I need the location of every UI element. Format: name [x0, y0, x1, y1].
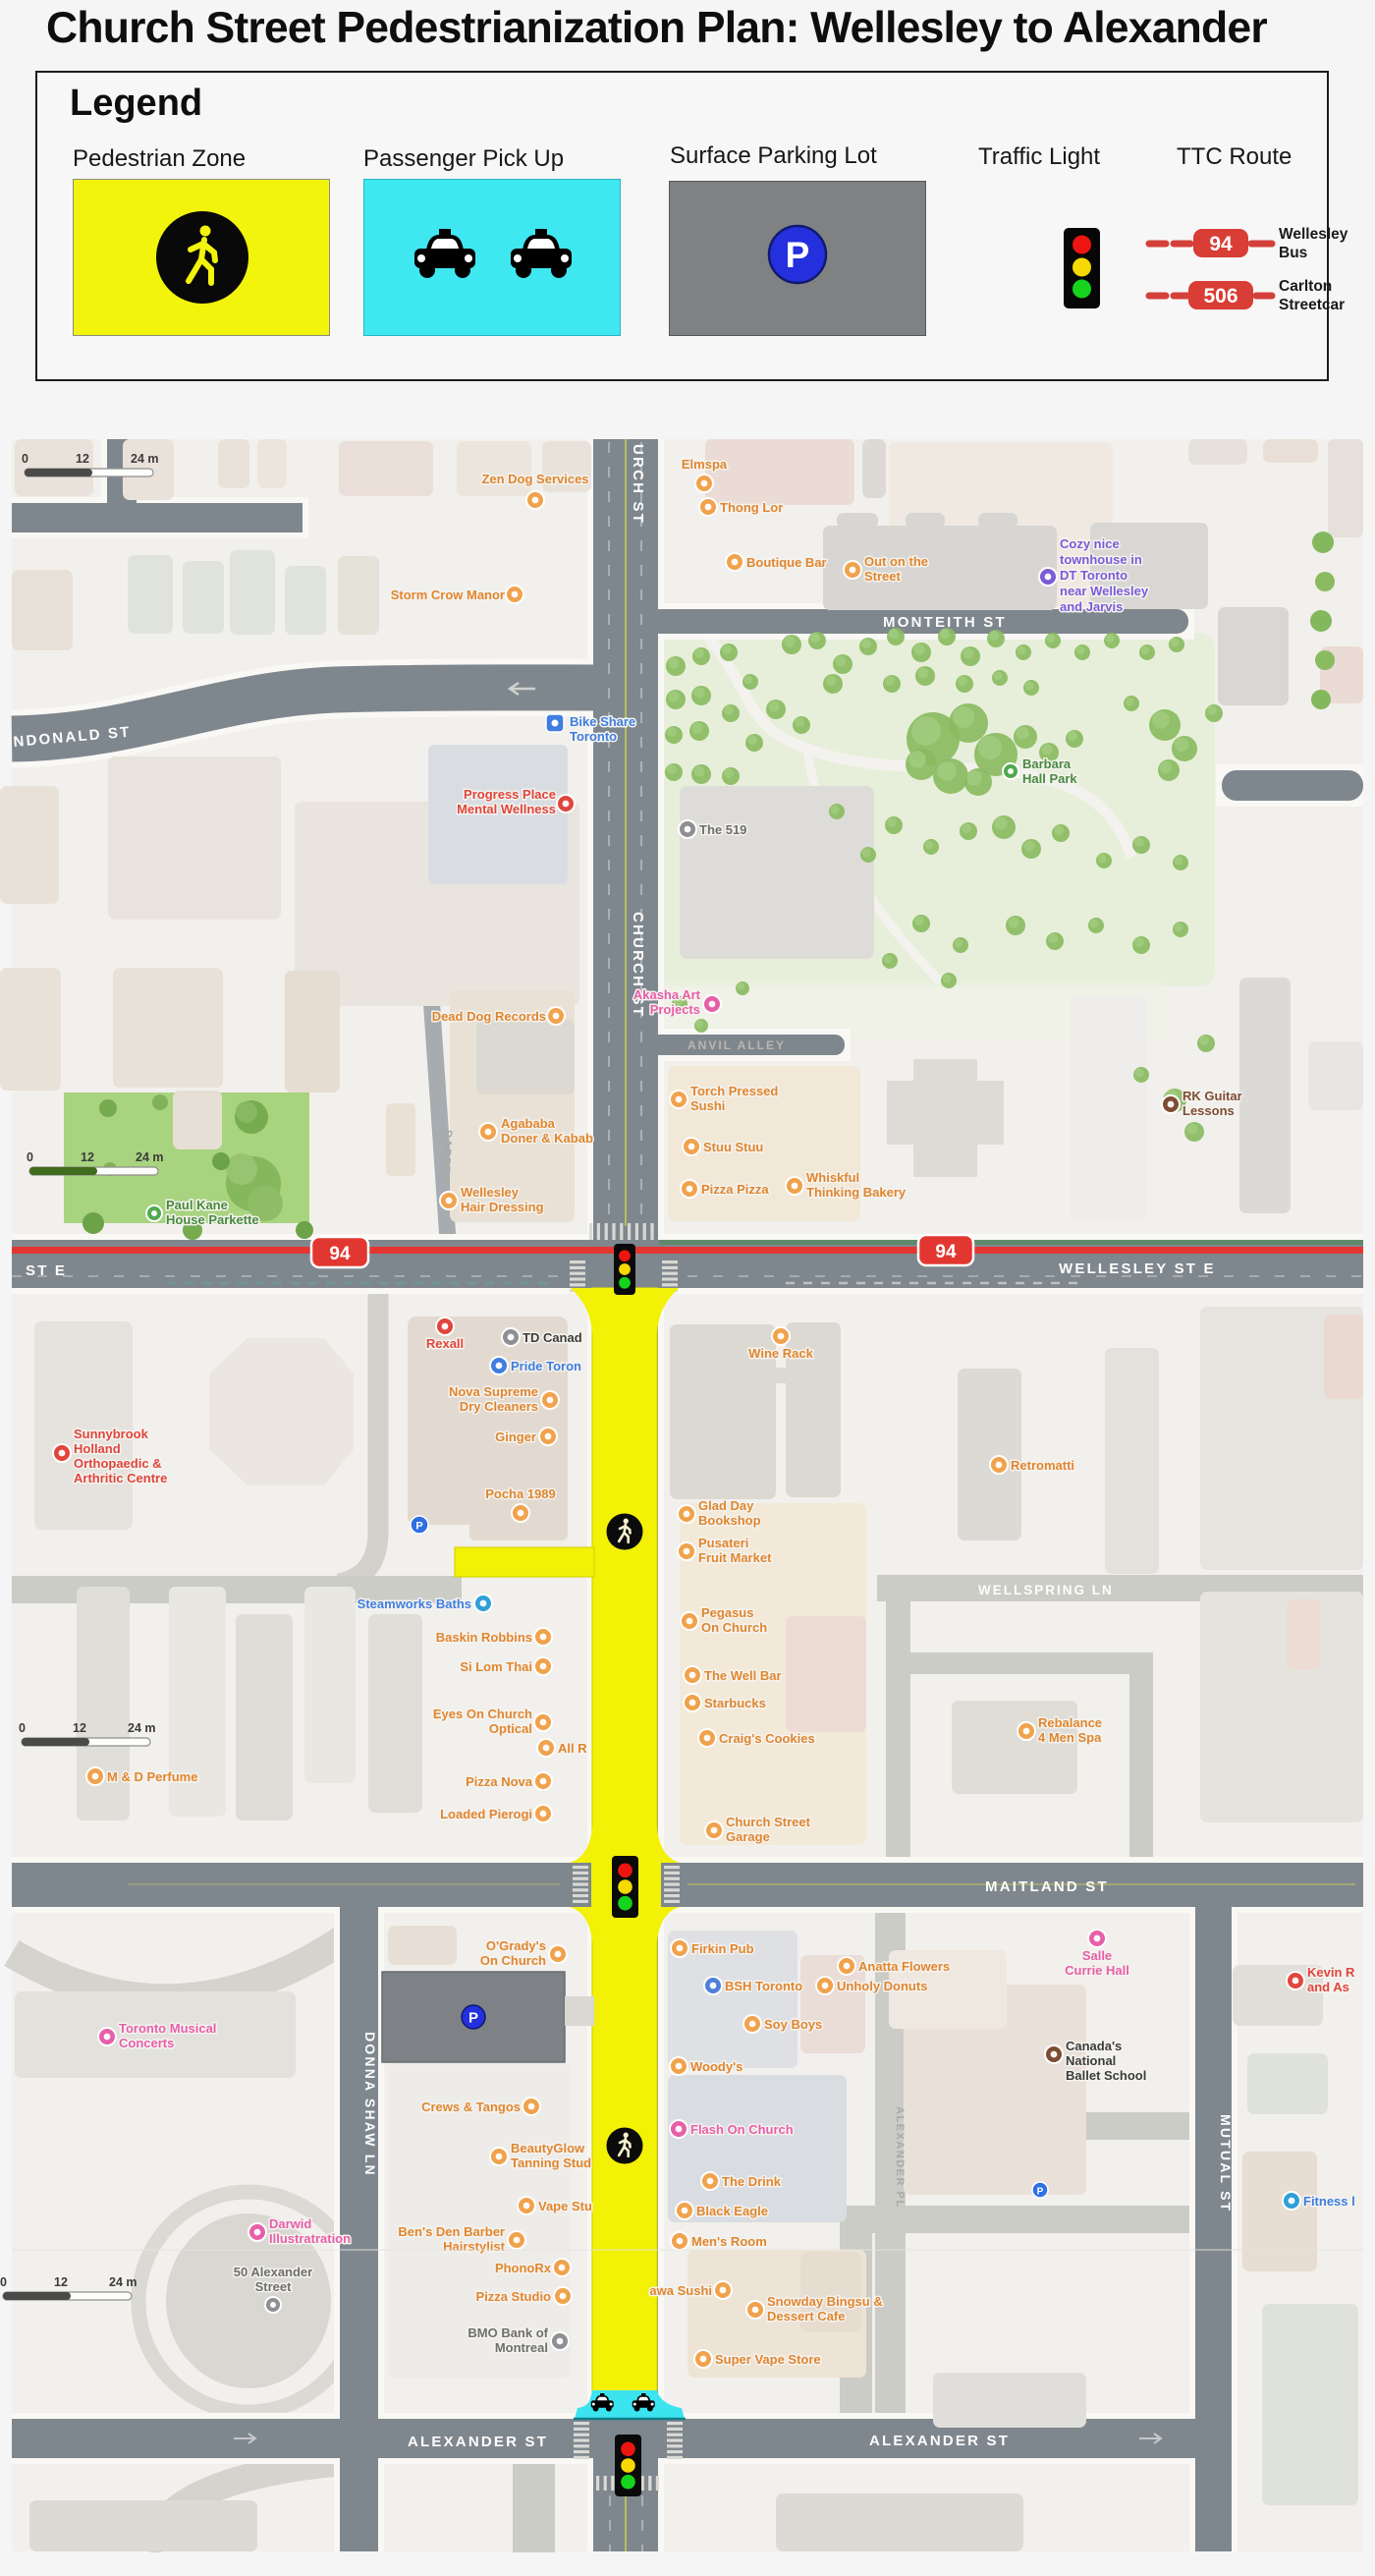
svg-text:Flash On Church: Flash On Church [690, 2122, 794, 2137]
svg-text:Pride Toron: Pride Toron [511, 1359, 581, 1373]
svg-text:Wine Rack: Wine Rack [748, 1346, 813, 1361]
svg-text:Unholy Donuts: Unholy Donuts [837, 1979, 927, 1993]
svg-text:12: 12 [54, 2275, 68, 2289]
svg-text:Nova SupremeDry Cleaners: Nova SupremeDry Cleaners [449, 1384, 538, 1414]
svg-text:WELLESLEY ST E: WELLESLEY ST E [1059, 1260, 1216, 1277]
svg-text:Woody's: Woody's [690, 2059, 742, 2074]
svg-text:Steamworks Baths: Steamworks Baths [357, 1596, 471, 1611]
svg-text:Boutique Bar: Boutique Bar [746, 555, 827, 570]
svg-text:Rexall: Rexall [426, 1336, 464, 1351]
svg-text:Dead Dog Records: Dead Dog Records [432, 1009, 546, 1024]
svg-text:Kevin Rand As: Kevin Rand As [1307, 1965, 1355, 1994]
svg-text:Glad DayBookshop: Glad DayBookshop [698, 1498, 761, 1528]
svg-text:Black Eagle: Black Eagle [696, 2204, 768, 2218]
svg-text:PhonoRx: PhonoRx [495, 2261, 552, 2275]
svg-text:Firkin Pub: Firkin Pub [691, 1941, 754, 1956]
svg-text:WELLSPRING LN: WELLSPRING LN [978, 1583, 1114, 1597]
svg-text:Craig's Cookies: Craig's Cookies [719, 1731, 815, 1746]
svg-text:The Drink: The Drink [722, 2174, 782, 2189]
svg-text:Elmspa: Elmspa [682, 457, 728, 472]
svg-text:MONTEITH ST: MONTEITH ST [883, 614, 1007, 631]
svg-text:24 m: 24 m [128, 1721, 156, 1735]
svg-text:P: P [786, 235, 810, 275]
svg-text:P: P [415, 1521, 422, 1533]
svg-text:Loaded Pierogi: Loaded Pierogi [440, 1807, 532, 1821]
svg-text:Soy Boys: Soy Boys [764, 2017, 822, 2032]
svg-text:BSH Toronto: BSH Toronto [725, 1979, 802, 1993]
svg-text:24 m: 24 m [131, 452, 159, 466]
svg-text:0: 0 [27, 1150, 33, 1164]
svg-text:Progress PlaceMental Wellness: Progress PlaceMental Wellness [457, 787, 556, 816]
svg-text:506: 506 [1203, 285, 1237, 308]
svg-text:ALEXANDER ST: ALEXANDER ST [869, 2433, 1010, 2449]
svg-text:TD Canad: TD Canad [522, 1330, 582, 1345]
svg-text:MUTUAL ST: MUTUAL ST [1218, 2114, 1234, 2212]
svg-text:MAITLAND ST: MAITLAND ST [985, 1878, 1109, 1895]
svg-text:RK GuitarLessons: RK GuitarLessons [1182, 1089, 1242, 1118]
svg-text:ANVIL ALLEY: ANVIL ALLEY [687, 1038, 786, 1052]
svg-text:O'Grady'sOn Church: O'Grady'sOn Church [480, 1938, 546, 1968]
svg-text:Pizza Studio: Pizza Studio [475, 2289, 551, 2304]
svg-text:94: 94 [1209, 233, 1233, 255]
svg-text:Si Lom Thai: Si Lom Thai [460, 1659, 532, 1674]
svg-text:Rebalance4 Men Spa: Rebalance4 Men Spa [1038, 1715, 1102, 1745]
svg-text:94: 94 [935, 1242, 957, 1262]
svg-text:URCH ST: URCH ST [630, 444, 646, 525]
svg-text:ST E: ST E [26, 1262, 67, 1279]
svg-text:M & D Perfume: M & D Perfume [107, 1769, 197, 1784]
svg-text:Pocha 1989: Pocha 1989 [485, 1486, 556, 1501]
svg-text:Streetcar: Streetcar [1279, 297, 1345, 313]
svg-text:Wellesley: Wellesley [1279, 226, 1348, 243]
svg-text:BeautyGlowTanning Stud: BeautyGlowTanning Stud [511, 2141, 591, 2170]
svg-text:BarbaraHall Park: BarbaraHall Park [1022, 756, 1077, 786]
svg-text:ALEXANDER ST: ALEXANDER ST [408, 2434, 548, 2450]
svg-text:Super Vape Store: Super Vape Store [715, 2352, 821, 2367]
svg-text:Pizza Nova: Pizza Nova [466, 1774, 533, 1789]
svg-text:Thong Lor: Thong Lor [720, 500, 783, 515]
svg-text:ALEXANDER PL: ALEXANDER PL [894, 2106, 906, 2209]
svg-text:Anatta Flowers: Anatta Flowers [858, 1959, 950, 1974]
svg-text:0: 0 [19, 1721, 26, 1735]
svg-text:Bus: Bus [1279, 245, 1307, 261]
svg-text:12: 12 [81, 1150, 94, 1164]
svg-text:0: 0 [22, 452, 28, 466]
svg-text:0: 0 [0, 2275, 7, 2289]
svg-text:Crews & Tangos: Crews & Tangos [421, 2100, 521, 2114]
svg-text:DONNA SHAW LN: DONNA SHAW LN [362, 2032, 378, 2177]
svg-text:Men's Room: Men's Room [691, 2234, 767, 2249]
svg-text:Starbucks: Starbucks [704, 1696, 766, 1710]
svg-text:Zen Dog Services: Zen Dog Services [481, 472, 588, 486]
svg-text:12: 12 [73, 1721, 86, 1735]
svg-text:Fitness l: Fitness l [1303, 2194, 1355, 2209]
svg-text:Ginger: Ginger [495, 1429, 536, 1444]
svg-text:The Well Bar: The Well Bar [704, 1668, 782, 1683]
svg-text:P: P [468, 2010, 478, 2027]
svg-text:P: P [1037, 2187, 1044, 2198]
svg-text:94: 94 [329, 1244, 351, 1264]
svg-text:Pizza Pizza: Pizza Pizza [701, 1182, 769, 1197]
svg-text:Baskin Robbins: Baskin Robbins [436, 1630, 532, 1645]
svg-text:Stuu Stuu: Stuu Stuu [703, 1140, 763, 1154]
svg-text:Retromatti: Retromatti [1011, 1458, 1074, 1473]
svg-text:Carlton: Carlton [1279, 278, 1332, 295]
svg-text:awa Sushi: awa Sushi [649, 2283, 712, 2298]
svg-text:The 519: The 519 [699, 822, 746, 837]
svg-text:All R: All R [558, 1741, 587, 1756]
svg-text:24 m: 24 m [136, 1150, 164, 1164]
svg-text:Vape Stu: Vape Stu [538, 2199, 592, 2213]
svg-text:24 m: 24 m [109, 2275, 137, 2289]
svg-text:12: 12 [76, 452, 89, 466]
svg-text:Storm Crow Manor: Storm Crow Manor [391, 588, 505, 602]
